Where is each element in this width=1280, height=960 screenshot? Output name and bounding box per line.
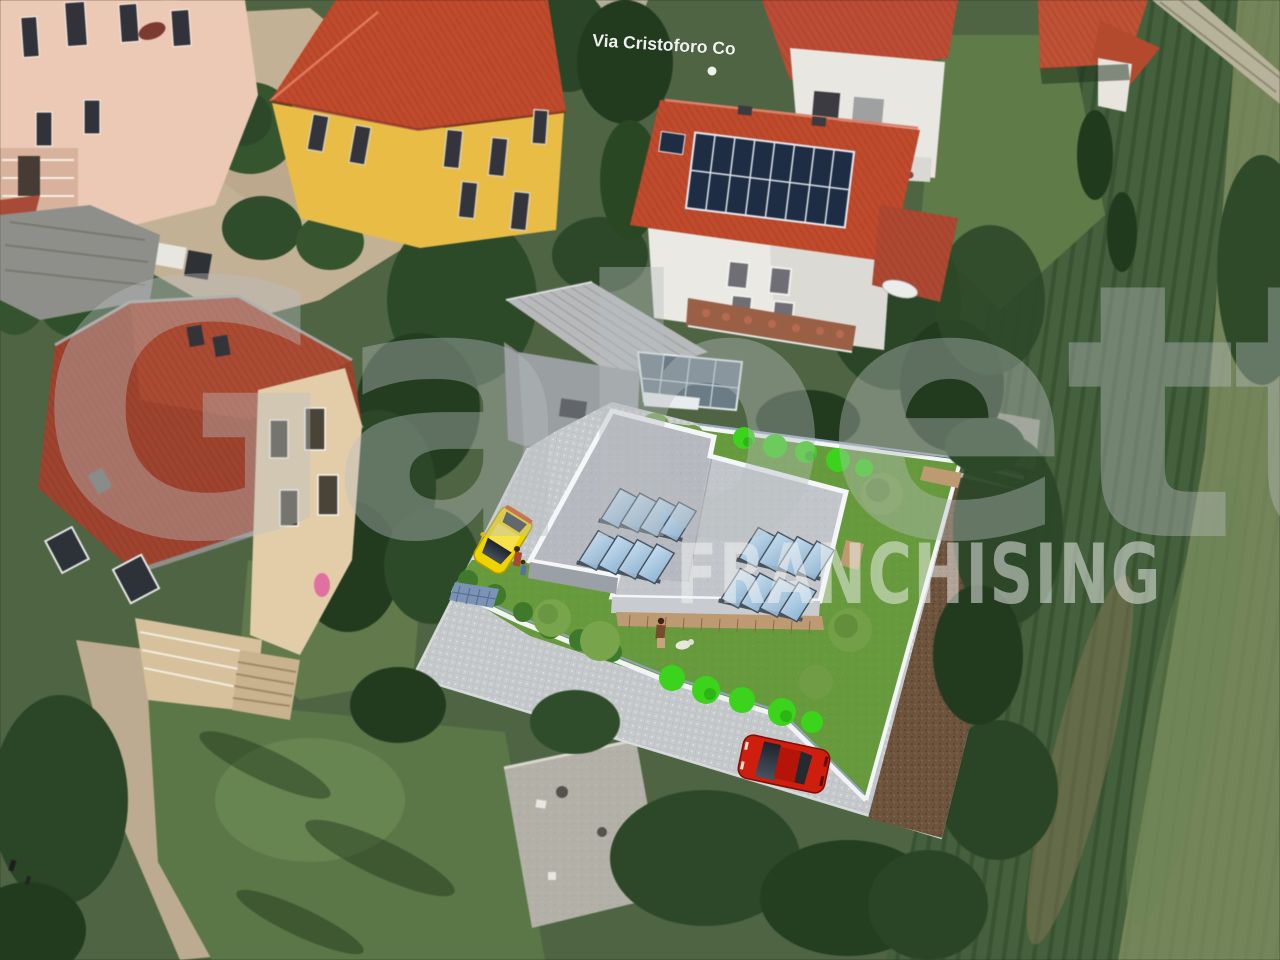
balcony-door: [18, 156, 40, 196]
roof-spot: [556, 786, 568, 798]
watermark: Gabetti FRANCHISING: [36, 208, 1280, 623]
tree: [350, 667, 446, 743]
tree: [868, 850, 988, 960]
solar-panel-single: [659, 131, 686, 154]
street-dot-icon: [708, 67, 717, 76]
aerial-render-image: Aerial photograph of a residential neigh…: [0, 0, 1280, 960]
stairs: [232, 650, 300, 720]
roof-spot: [597, 827, 607, 837]
roof-window: [738, 105, 753, 115]
tree: [530, 690, 620, 754]
white-object: [548, 872, 556, 880]
watermark-subtitle: FRANCHISING: [676, 526, 1162, 623]
tree: [577, 0, 673, 124]
hedge: [1077, 110, 1113, 200]
roof-window: [812, 116, 827, 126]
white-object: [535, 799, 546, 809]
screenshot-root: Aerial photograph of a residential neigh…: [0, 0, 1280, 960]
